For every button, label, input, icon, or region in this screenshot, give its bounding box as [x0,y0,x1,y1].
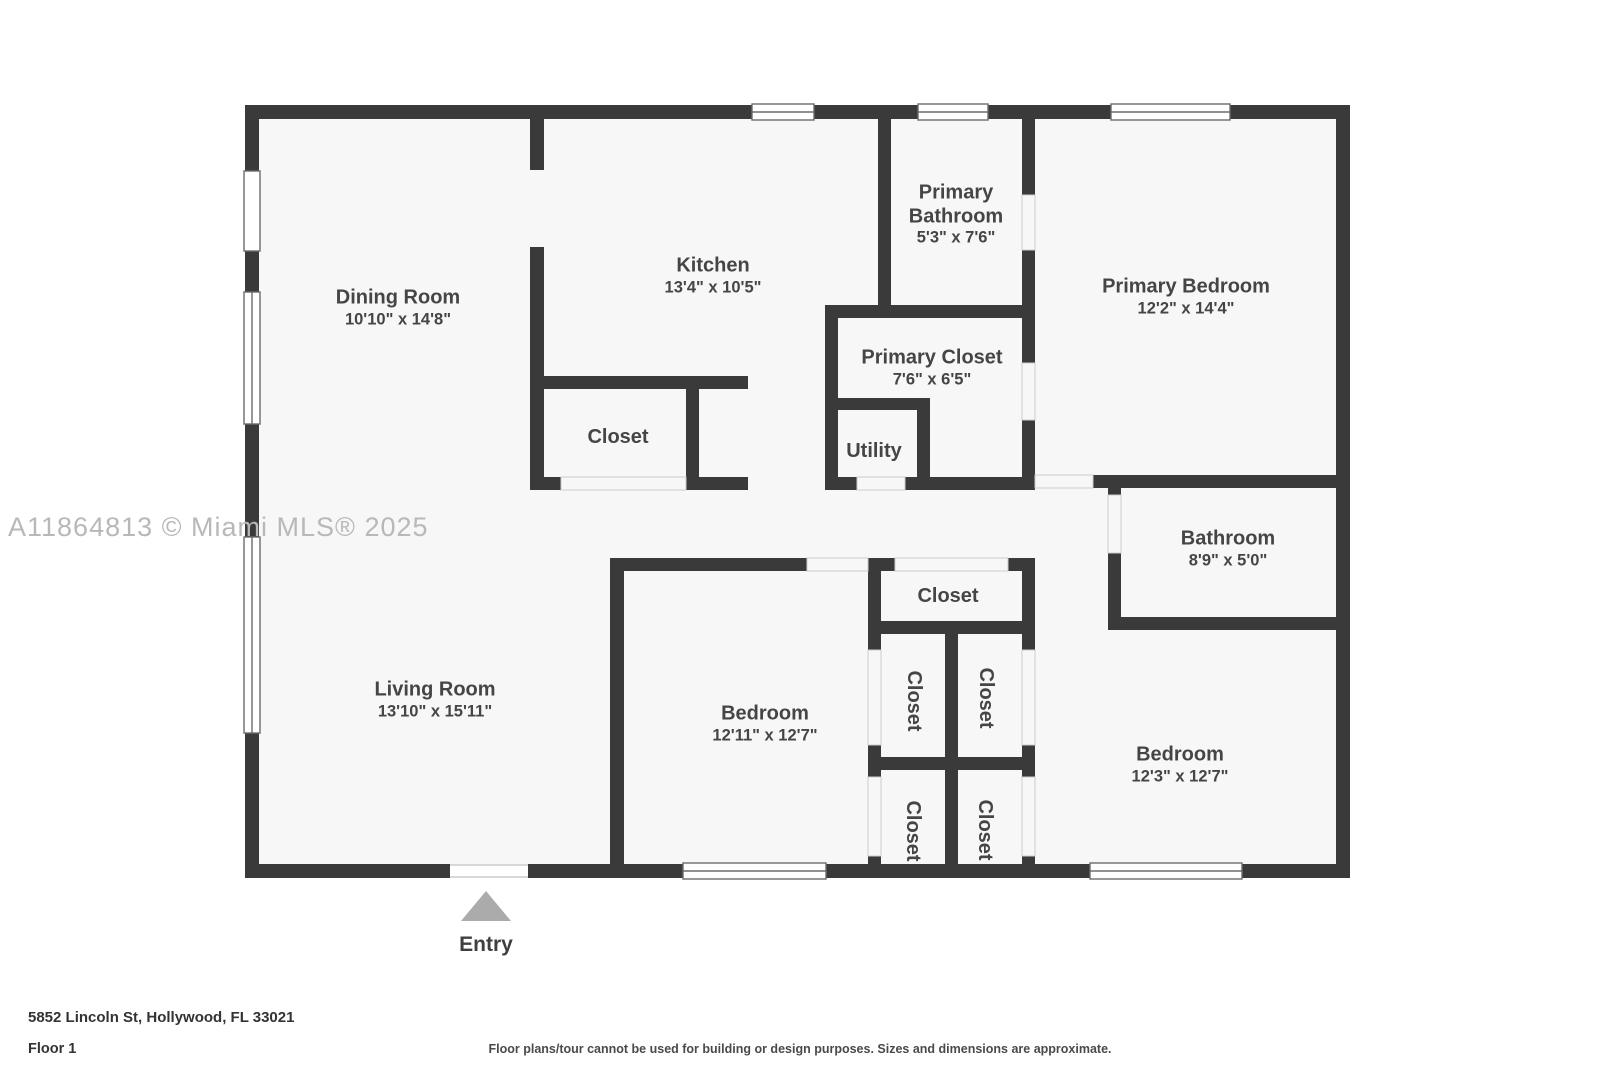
room-dims: 12'11" x 12'7" [712,726,817,745]
room-dims: 12'3" x 12'7" [1132,767,1229,786]
entry-opening [450,864,528,878]
room-name: Bedroom [712,702,817,726]
room-label-closet-ne: Closet [973,667,997,728]
room-name: Primary Closet [861,346,1002,370]
mls-watermark: A11864813 © Miami MLS® 2025 [8,512,429,543]
room-name: Living Room [374,678,495,702]
entry-arrow-icon [461,891,511,921]
room-label-closet-se: Closet [972,799,996,860]
floor-plan-page: Dining Room 10'10" x 14'8" Kitchen 13'4"… [0,0,1600,1066]
room-label-primary-bathroom: Primary Bathroom 5'3" x 7'6" [886,182,1026,249]
room-name: Bathroom [1181,527,1275,551]
room-name: Primary Bathroom [886,182,1026,229]
room-label-dining: Dining Room 10'10" x 14'8" [336,286,460,329]
room-name: Closet [917,585,978,609]
room-name: Dining Room [336,286,460,310]
room-label-utility: Utility [846,440,902,464]
room-name: Kitchen [665,254,762,278]
room-name: Utility [846,440,902,464]
room-dims: 5'3" x 7'6" [886,229,1026,248]
room-dims: 13'4" x 10'5" [665,278,762,297]
room-dims: 7'6" x 6'5" [861,370,1002,389]
room-name: Closet [973,667,997,728]
room-dims: 13'10" x 15'11" [374,702,495,721]
room-dims: 10'10" x 14'8" [336,310,460,329]
property-address: 5852 Lincoln St, Hollywood, FL 33021 [28,1009,294,1026]
room-label-primary-closet: Primary Closet 7'6" x 6'5" [861,346,1002,389]
room-label-bathroom: Bathroom 8'9" x 5'0" [1181,527,1275,570]
room-label-living: Living Room 13'10" x 15'11" [374,678,495,721]
room-label-bedroom-right: Bedroom 12'3" x 12'7" [1132,743,1229,786]
room-label-bedroom-center: Bedroom 12'11" x 12'7" [712,702,817,745]
room-label-closet-sw: Closet [900,800,924,861]
disclaimer-text: Floor plans/tour cannot be used for buil… [488,1042,1111,1056]
room-dims: 8'9" x 5'0" [1181,551,1275,570]
room-name: Closet [901,670,925,731]
room-name: Bedroom [1132,743,1229,767]
room-label-hall-closet: Closet [917,585,978,609]
room-label-kitchen-closet: Closet [587,426,648,450]
room-name: Closet [900,800,924,861]
room-name: Primary Bedroom [1102,275,1270,299]
floor-number: Floor 1 [28,1041,76,1057]
room-label-primary-bedroom: Primary Bedroom 12'2" x 14'4" [1102,275,1270,318]
room-name: Closet [587,426,648,450]
entry-label: Entry [459,933,513,957]
room-label-kitchen: Kitchen 13'4" x 10'5" [665,254,762,297]
room-label-closet-nw: Closet [901,670,925,731]
room-name: Closet [972,799,996,860]
room-dims: 12'2" x 14'4" [1102,299,1270,318]
